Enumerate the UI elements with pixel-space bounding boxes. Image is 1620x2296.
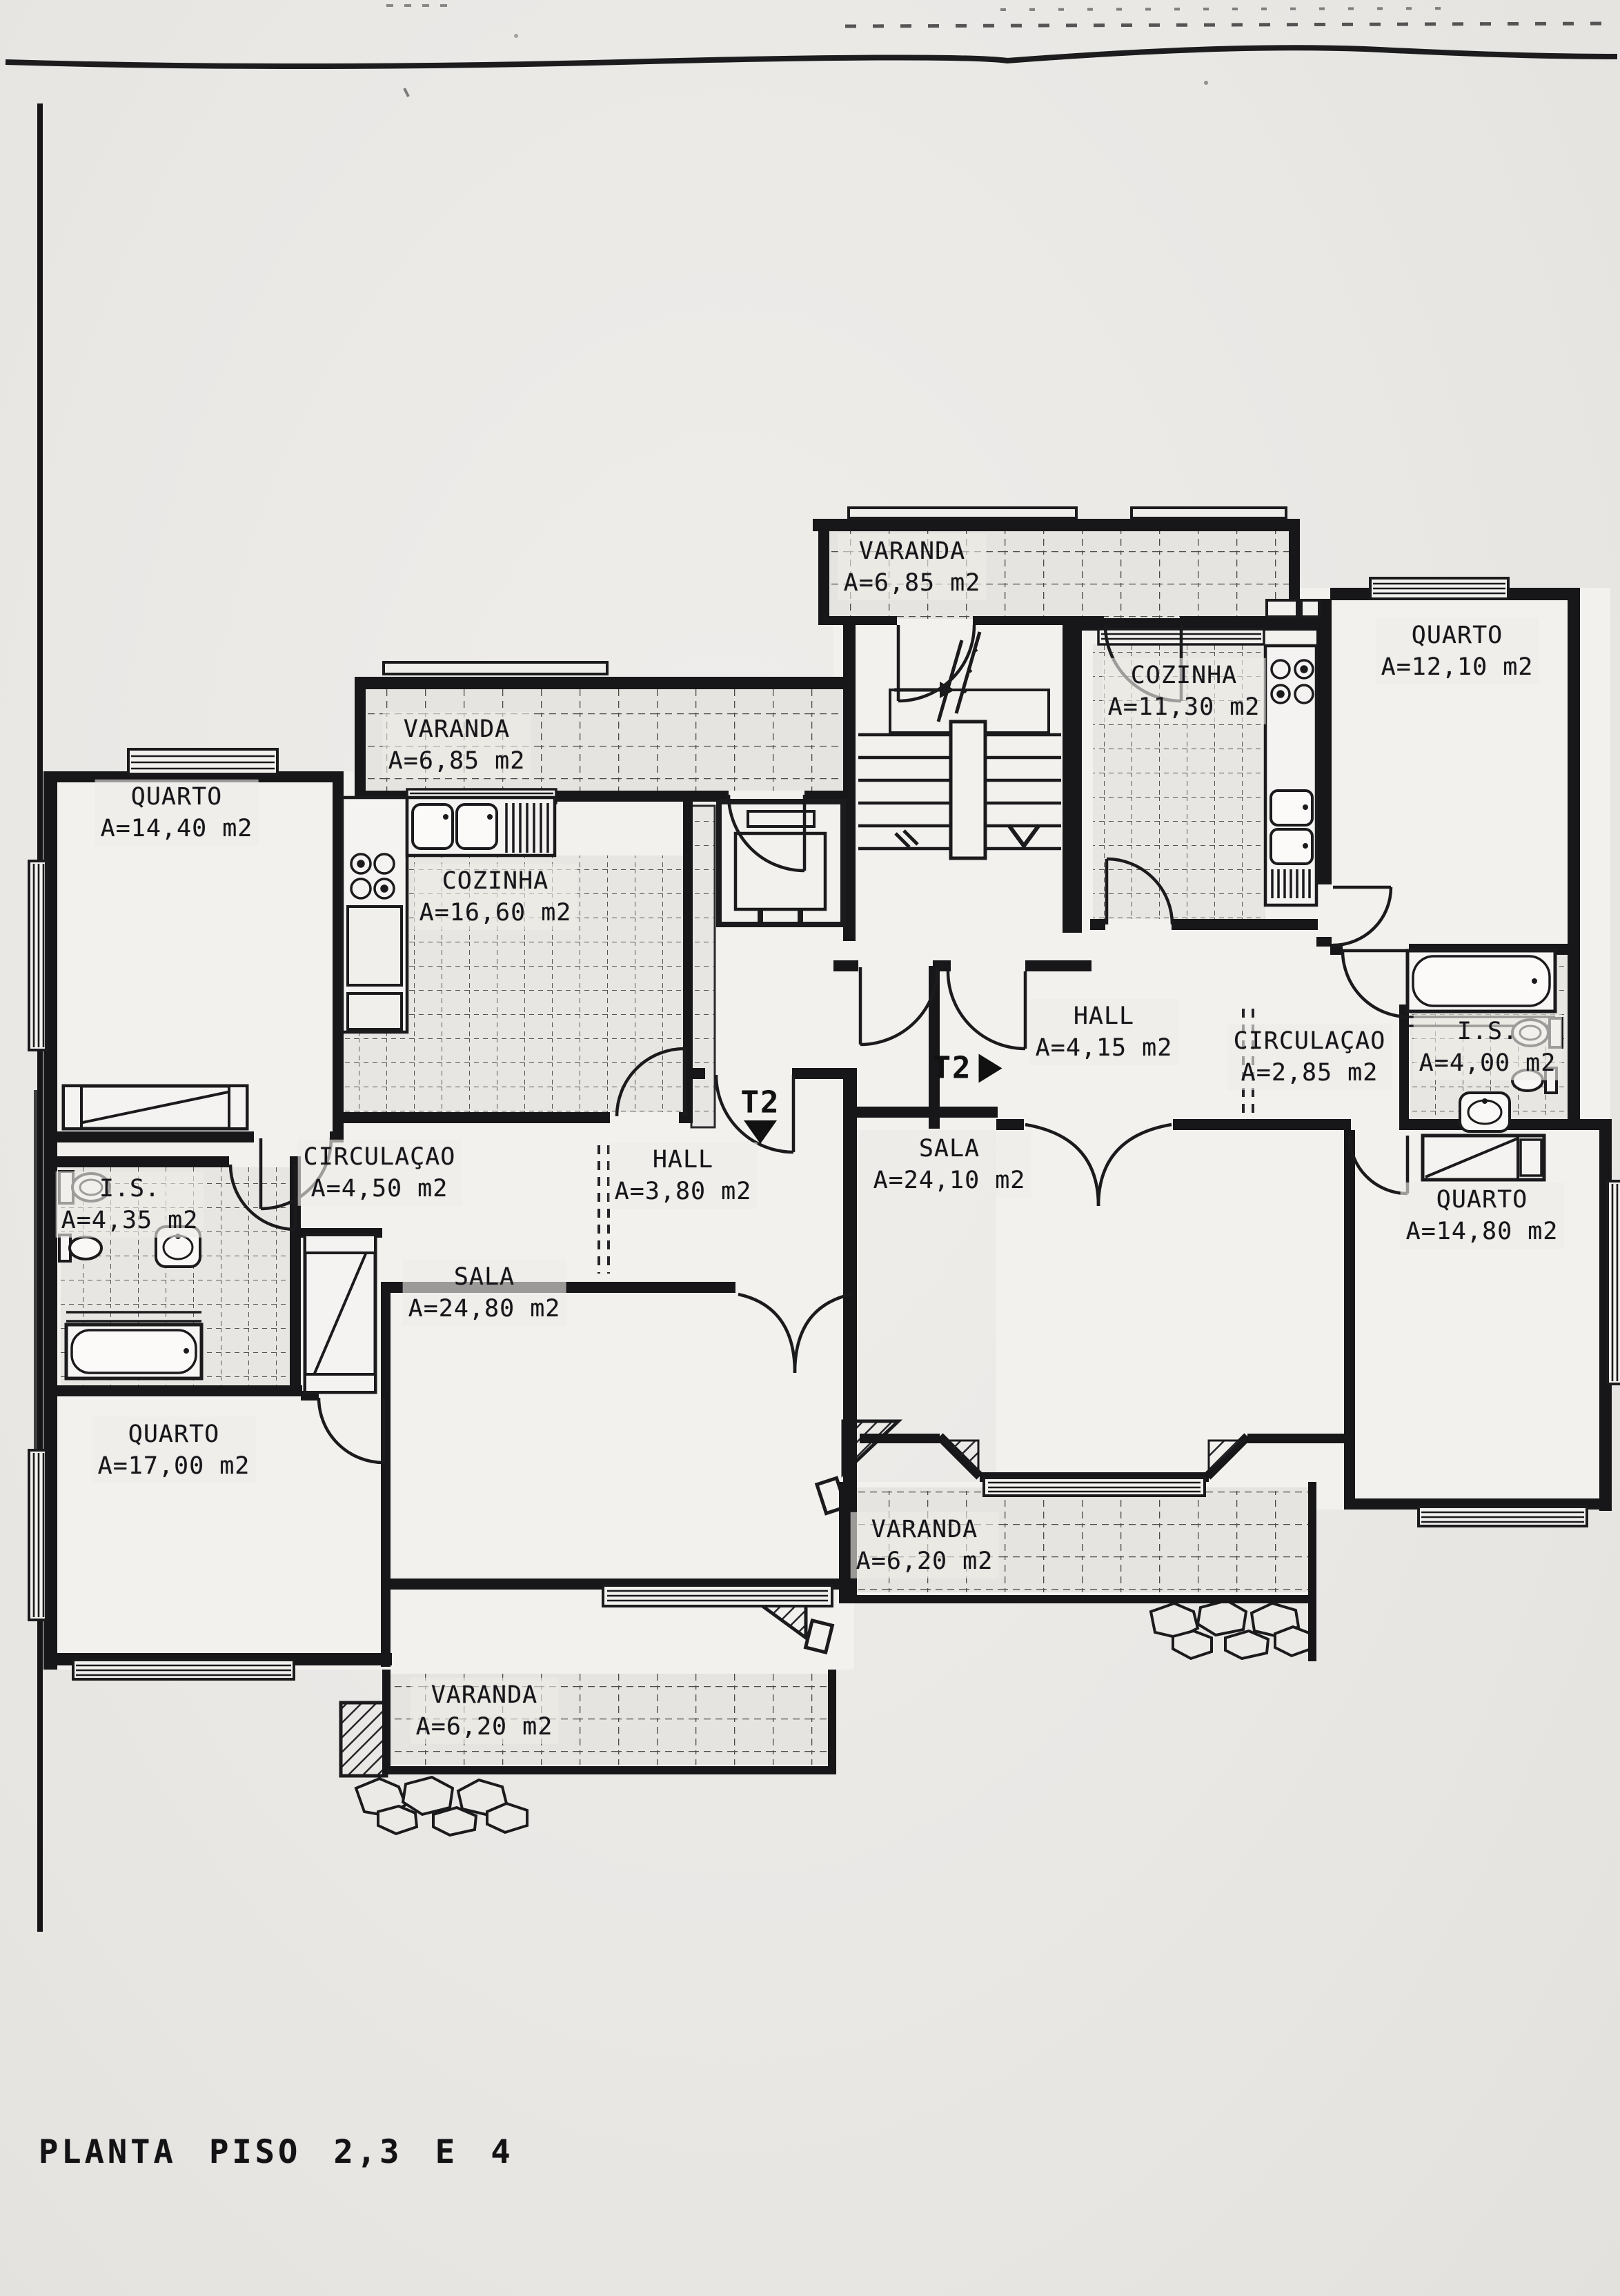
- dish-drainer-right: [1272, 869, 1310, 898]
- room-label-varanda-left: VARANDAA=6,85 m2: [383, 712, 531, 778]
- room-label-hall-left: HALLA=3,80 m2: [609, 1142, 758, 1209]
- room-label-circulacao-left: CIRCULAÇAOA=4,50 m2: [298, 1140, 462, 1206]
- plan-title: PLANTA PISO 2,3 E 4: [39, 2133, 514, 2171]
- rocks-bottom-left: [356, 1777, 527, 1835]
- window-quarto-1480-right: [1608, 1181, 1620, 1384]
- room-label-sala-right: SALAA=24,10 m2: [868, 1131, 1031, 1198]
- room-label-hall-right: HALLA=4,15 m2: [1030, 999, 1178, 1065]
- window-sala-right-bay: [984, 1478, 1205, 1496]
- room-label-is-right: I.S.A=4,00 m2: [1414, 1014, 1562, 1080]
- window-quarto-17-bottom: [73, 1660, 294, 1679]
- washbasin-right: [1460, 1093, 1510, 1131]
- dish-drainer-left: [506, 803, 548, 853]
- floor-plan-drawing: [0, 0, 1620, 2296]
- entry-label-left: T2: [741, 1085, 780, 1120]
- entry-arrow-right-icon: [978, 1053, 1002, 1082]
- window-sala-left-bay: [603, 1585, 832, 1606]
- window-quarto-1210-top: [1370, 578, 1508, 599]
- elevator: [719, 802, 843, 924]
- entry-arrow-down-icon: [744, 1120, 777, 1144]
- room-label-varanda-bottom-left: VARANDAA=6,20 m2: [411, 1678, 559, 1744]
- scan-noise-top: [6, 6, 1617, 97]
- room-label-circulacao-right: CIRCULAÇAOA=2,85 m2: [1228, 1024, 1392, 1090]
- window-quarto-17-left: [29, 1450, 46, 1620]
- room-label-cozinha-left: COZINHAA=16,60 m2: [414, 864, 577, 930]
- bidet-left: [59, 1235, 101, 1261]
- room-label-quarto-top-right: QUARTOA=12,10 m2: [1376, 618, 1539, 684]
- entry-label-right: T2: [933, 1051, 972, 1086]
- wardrobe-sala-left: [305, 1235, 375, 1392]
- bathtub-left: [66, 1312, 201, 1378]
- entry-marker-right-t2: T2: [933, 1051, 1002, 1086]
- room-label-varanda-bottom-middle: VARANDAA=6,20 m2: [851, 1512, 999, 1578]
- window-quarto-1440-left: [29, 861, 46, 1050]
- room-label-varanda-top-right: VARANDAA=6,85 m2: [838, 534, 987, 600]
- room-label-quarto-bottom-right: QUARTOA=14,80 m2: [1401, 1182, 1564, 1249]
- rocks-bottom-middle: [1151, 1601, 1311, 1659]
- kitchen-right-fixtures: [1265, 600, 1319, 905]
- planter-varanda-bottom-left: [341, 1703, 386, 1776]
- window-quarto-1440-top: [128, 749, 277, 774]
- entry-marker-left-t2: T2: [741, 1085, 780, 1120]
- wardrobe-quarto-1480: [1423, 1136, 1544, 1180]
- window-quarto-1480-bottom: [1419, 1507, 1587, 1526]
- room-label-quarto-bottom-left: QUARTOA=17,00 m2: [92, 1417, 256, 1483]
- tiles-entry-strip: [691, 806, 715, 1127]
- room-label-quarto-top-left: QUARTOA=14,40 m2: [95, 780, 259, 846]
- room-label-cozinha-right: COZINHAA=11,30 m2: [1103, 658, 1266, 724]
- scanned-floor-plan-page: VARANDAA=6,85 m2 COZINHAA=11,30 m2 QUART…: [0, 0, 1620, 2296]
- room-label-is-left: I.S.A=4,35 m2: [56, 1171, 204, 1238]
- wardrobe-quarto-1440: [63, 1086, 247, 1129]
- room-label-sala-left: SALAA=24,80 m2: [403, 1260, 566, 1326]
